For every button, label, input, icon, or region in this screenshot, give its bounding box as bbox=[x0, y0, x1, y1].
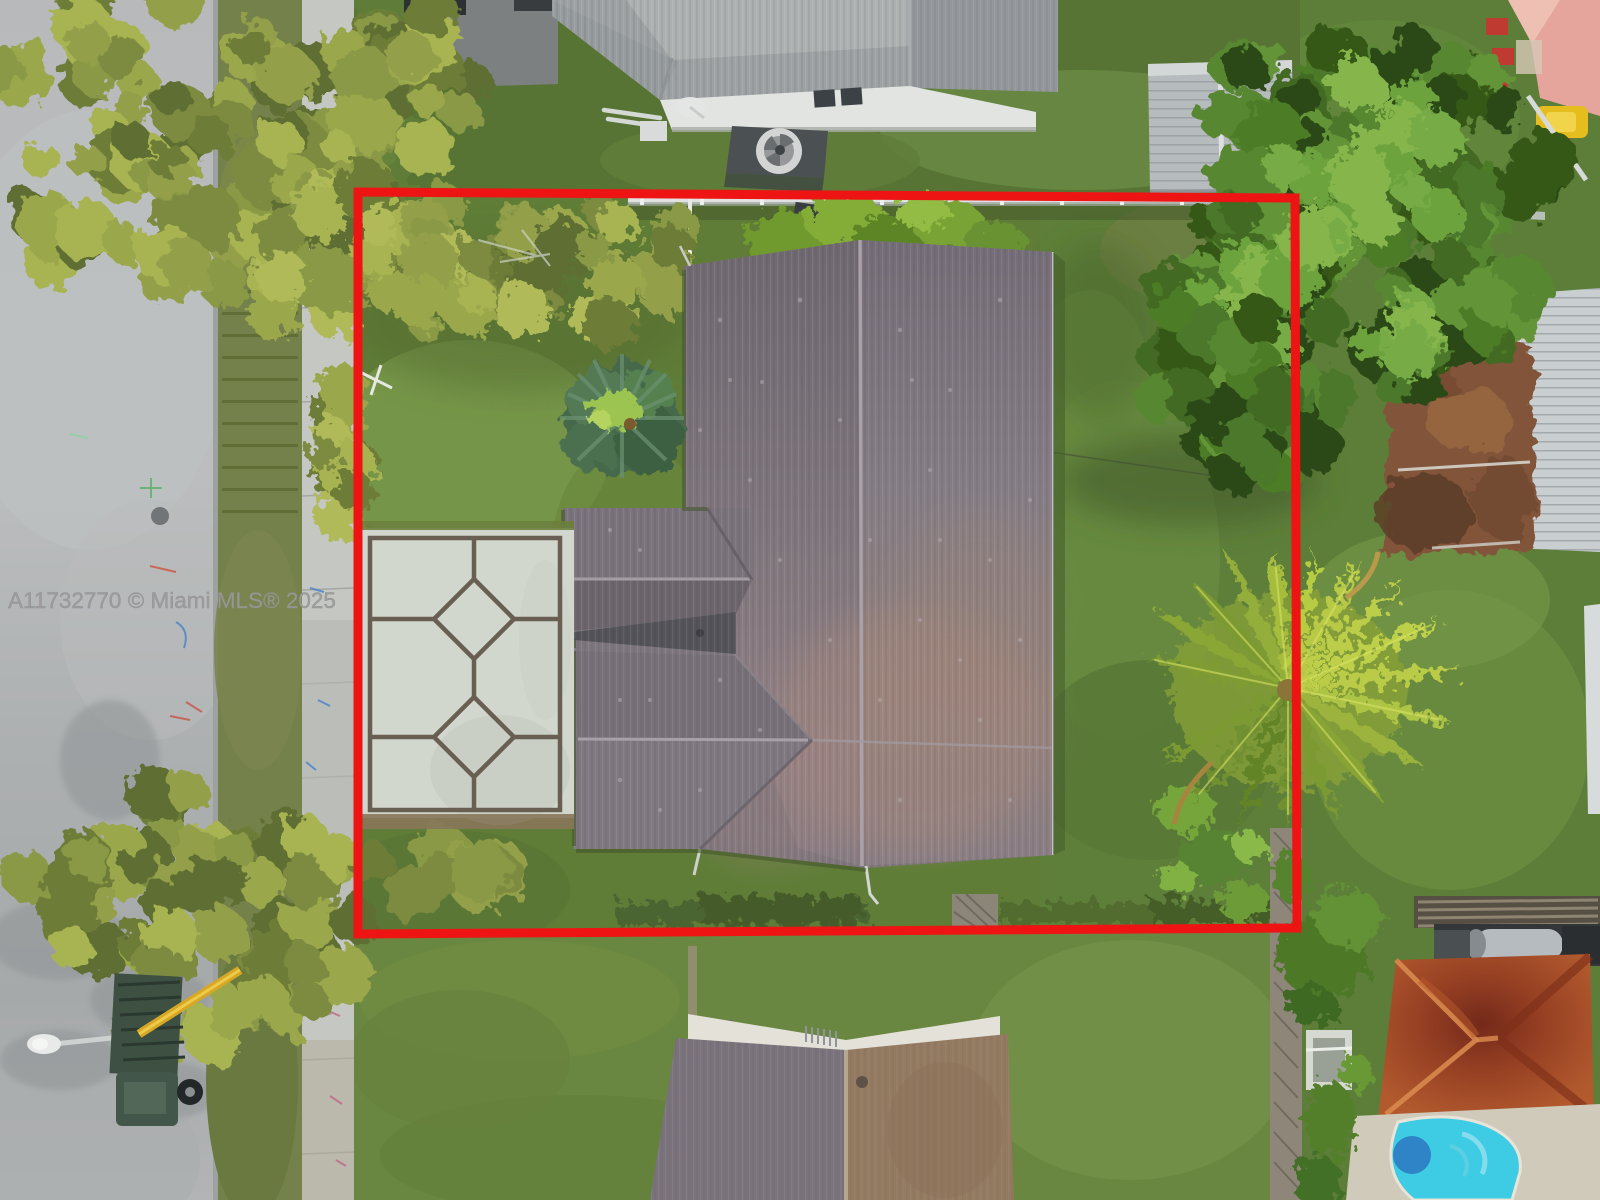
svg-text:A11732770 © Miami MLS® 2025: A11732770 © Miami MLS® 2025 bbox=[8, 588, 336, 613]
